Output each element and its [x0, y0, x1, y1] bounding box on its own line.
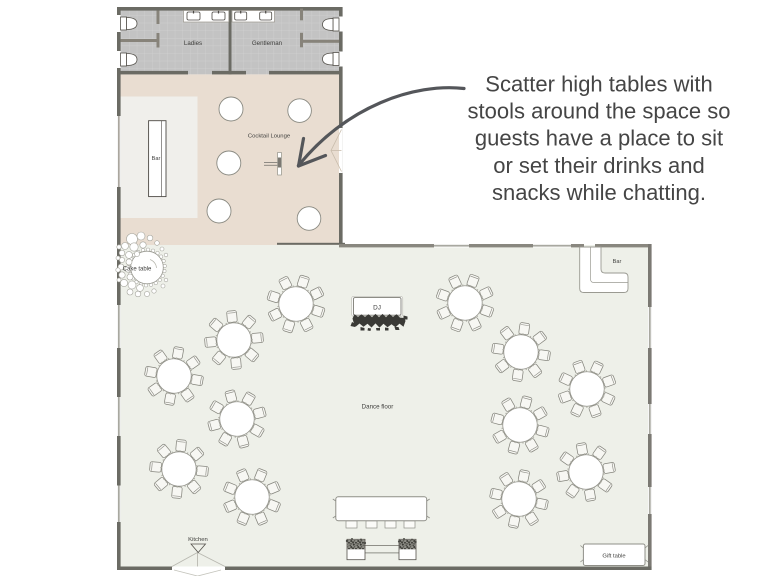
svg-text:or set their drinks and: or set their drinks and — [493, 153, 705, 178]
svg-text:Ladies: Ladies — [184, 40, 202, 47]
svg-text:Cake table: Cake table — [123, 267, 152, 273]
svg-text:guests have a place to sit: guests have a place to sit — [475, 126, 723, 151]
svg-text:snacks while chatting.: snacks while chatting. — [492, 180, 706, 205]
svg-text:stools around the space so: stools around the space so — [468, 99, 731, 124]
svg-text:Cocktail Lounge: Cocktail Lounge — [248, 134, 291, 140]
svg-text:Bar: Bar — [613, 259, 622, 265]
svg-text:Scatter high tables with: Scatter high tables with — [485, 71, 712, 96]
svg-text:DJ: DJ — [373, 305, 381, 312]
svg-text:Gift table: Gift table — [602, 554, 625, 560]
svg-text:Bar: Bar — [152, 156, 161, 162]
svg-text:Kitchen: Kitchen — [188, 537, 208, 543]
svg-text:Gentleman: Gentleman — [252, 40, 283, 47]
svg-text:Dance floor: Dance floor — [362, 404, 394, 411]
